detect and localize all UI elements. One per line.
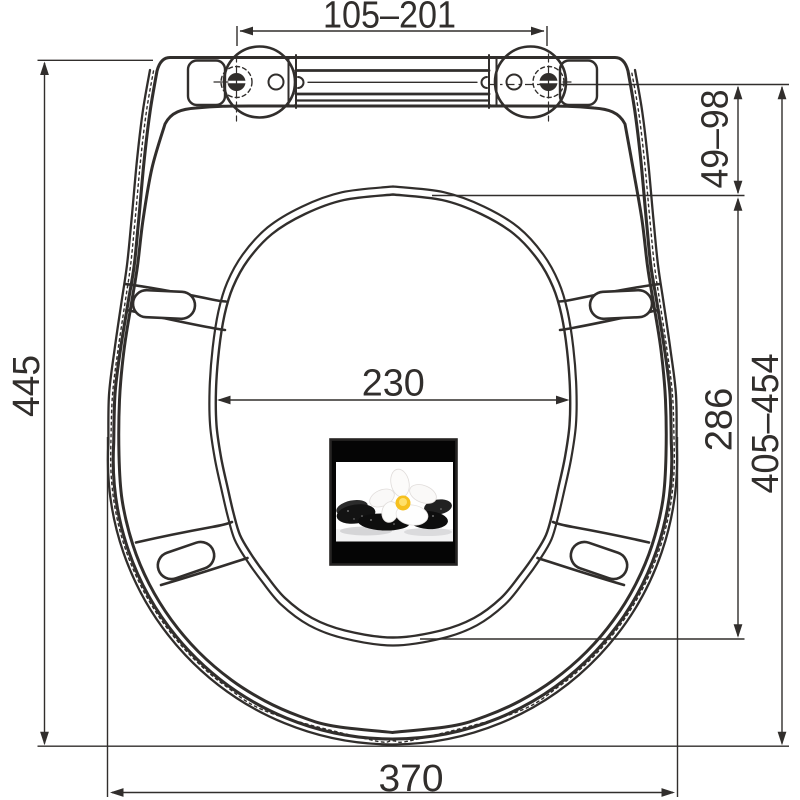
svg-text:405–454: 405–454 xyxy=(745,354,787,494)
svg-text:286: 286 xyxy=(699,388,741,452)
svg-text:49–98: 49–98 xyxy=(695,90,737,189)
svg-text:230: 230 xyxy=(362,363,425,405)
svg-text:105–201: 105–201 xyxy=(323,0,456,36)
svg-text:370: 370 xyxy=(379,758,444,800)
svg-text:445: 445 xyxy=(6,355,48,417)
